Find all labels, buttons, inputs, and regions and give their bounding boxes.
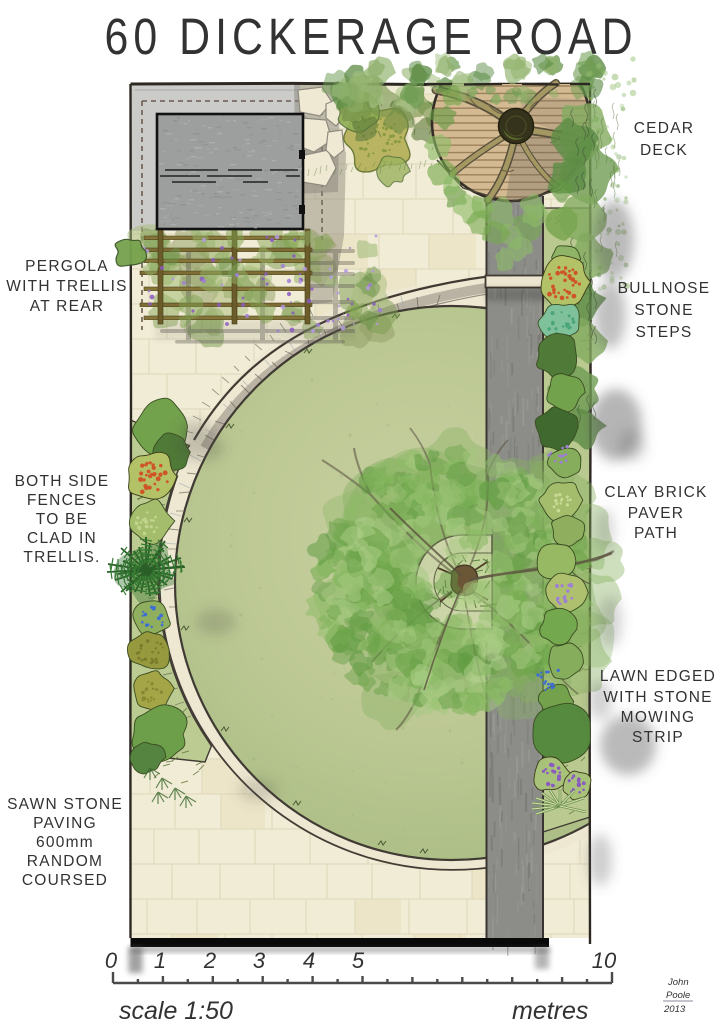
svg-text:TO BE: TO BE bbox=[36, 511, 88, 528]
svg-text:5: 5 bbox=[352, 948, 365, 973]
svg-text:PAVING: PAVING bbox=[33, 815, 97, 832]
svg-text:John: John bbox=[667, 977, 689, 988]
svg-text:3: 3 bbox=[253, 948, 266, 973]
svg-text:Poole: Poole bbox=[666, 990, 690, 1001]
svg-text:COURSED: COURSED bbox=[22, 872, 108, 889]
svg-text:600mm: 600mm bbox=[36, 834, 94, 851]
svg-text:WITH TRELLIS: WITH TRELLIS bbox=[6, 278, 128, 295]
svg-text:PERGOLA: PERGOLA bbox=[25, 258, 109, 275]
svg-text:BULLNOSE: BULLNOSE bbox=[618, 280, 711, 297]
svg-text:PATH: PATH bbox=[634, 525, 678, 542]
svg-text:2013: 2013 bbox=[663, 1004, 686, 1015]
svg-text:metres: metres bbox=[512, 997, 588, 1025]
svg-text:scale 1:50: scale 1:50 bbox=[119, 997, 233, 1025]
svg-text:WITH STONE: WITH STONE bbox=[603, 689, 713, 706]
svg-text:4: 4 bbox=[303, 948, 315, 973]
svg-text:BOTH SIDE: BOTH SIDE bbox=[15, 473, 110, 490]
svg-text:1: 1 bbox=[154, 948, 166, 973]
svg-text:MOWING: MOWING bbox=[621, 709, 696, 726]
svg-text:PAVER: PAVER bbox=[628, 505, 685, 522]
svg-text:10: 10 bbox=[592, 948, 617, 973]
svg-text:CEDAR: CEDAR bbox=[634, 120, 695, 137]
svg-text:SAWN STONE: SAWN STONE bbox=[7, 796, 123, 813]
svg-text:STEPS: STEPS bbox=[635, 324, 692, 341]
svg-text:AT REAR: AT REAR bbox=[30, 298, 105, 315]
svg-text:STONE: STONE bbox=[634, 302, 693, 319]
svg-text:RANDOM: RANDOM bbox=[27, 853, 103, 870]
svg-text:TRELLIS.: TRELLIS. bbox=[23, 549, 100, 566]
svg-text:FENCES: FENCES bbox=[27, 492, 97, 509]
svg-text:LAWN EDGED: LAWN EDGED bbox=[600, 668, 716, 685]
svg-text:60 DICKERAGE ROAD: 60 DICKERAGE ROAD bbox=[104, 7, 637, 64]
svg-text:0: 0 bbox=[105, 948, 118, 973]
svg-text:DECK: DECK bbox=[640, 142, 688, 159]
svg-text:2: 2 bbox=[203, 948, 216, 973]
svg-text:STRIP: STRIP bbox=[632, 729, 684, 746]
svg-text:CLAD IN: CLAD IN bbox=[27, 530, 97, 547]
svg-text:CLAY BRICK: CLAY BRICK bbox=[604, 484, 707, 501]
